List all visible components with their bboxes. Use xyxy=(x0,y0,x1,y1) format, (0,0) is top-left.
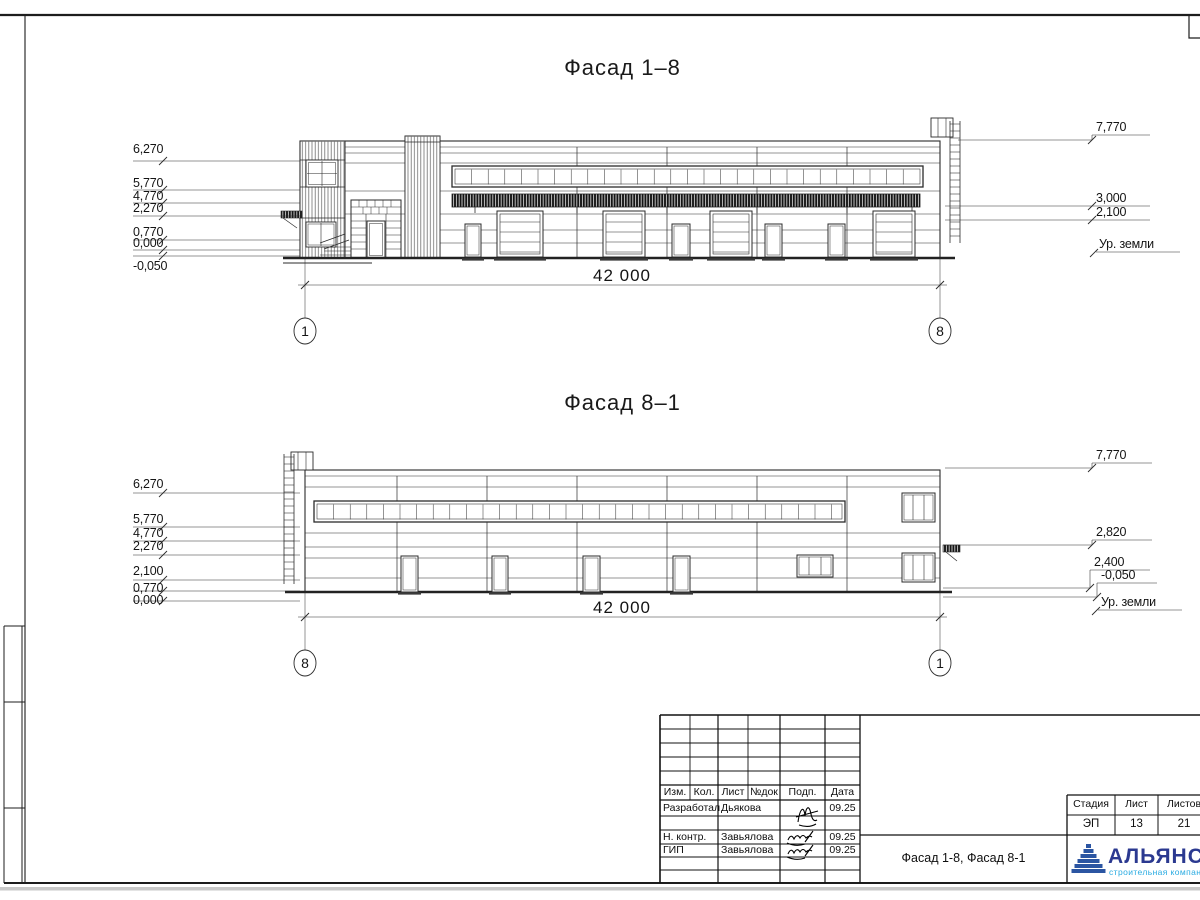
tb-row-date: 09.25 xyxy=(825,845,860,857)
tb-row-role: Н. контр. xyxy=(663,832,706,844)
tb-col-kol: Кол. xyxy=(690,787,718,799)
elevation-mark: 0,000 xyxy=(133,237,163,250)
tb-sheets-header: Листов xyxy=(1158,799,1200,811)
elevation-mark: 2,270 xyxy=(133,202,163,215)
tb-stage-header: Стадия xyxy=(1067,799,1115,811)
ground-level-label: Ур. земли xyxy=(1099,238,1154,251)
axis-bubble-1: 1 xyxy=(929,655,951,671)
tb-row-name: Дьякова xyxy=(721,803,761,815)
tb-row-date: 09.25 xyxy=(825,803,860,815)
axis-bubble-8: 8 xyxy=(929,323,951,339)
elevation-mark: 2,100 xyxy=(1096,206,1126,219)
elevation-mark: -0,050 xyxy=(1101,569,1135,582)
tb-row-role: Разработал xyxy=(663,803,720,815)
ground-level-label: Ур. земли xyxy=(1101,596,1156,609)
axis-bubble-8: 8 xyxy=(294,655,316,671)
facade-8-1-dimension: 42 000 xyxy=(542,599,702,617)
elevation-mark: 2,820 xyxy=(1096,526,1126,539)
axis-bubble-1: 1 xyxy=(294,323,316,339)
elevation-mark: 7,770 xyxy=(1096,449,1126,462)
signatures xyxy=(787,808,818,860)
elevation-mark: 2,100 xyxy=(133,565,163,578)
elevation-mark: 2,270 xyxy=(133,540,163,553)
elevation-mark: -0,050 xyxy=(133,260,167,273)
tb-sheet-value: 13 xyxy=(1115,818,1158,831)
drawing-linework xyxy=(0,0,1200,900)
tb-col-list: Лист xyxy=(718,787,748,799)
facade-1-8-title: Фасад 1–8 xyxy=(450,56,795,80)
facade-8-1-drawing xyxy=(285,452,960,676)
elevation-mark: 6,270 xyxy=(133,143,163,156)
facade-1-8-dimension: 42 000 xyxy=(542,267,702,285)
tb-row-name: Завьялова xyxy=(721,845,773,857)
elevation-mark: 5,770 xyxy=(133,513,163,526)
elevation-mark: 6,270 xyxy=(133,478,163,491)
signature-icon xyxy=(796,808,818,827)
brand-name: АЛЬЯНС xyxy=(1108,846,1200,867)
tb-sheets-value: 21 xyxy=(1158,818,1200,831)
brand-tagline: строительная компания xyxy=(1109,868,1200,877)
tb-row-name: Завьялова xyxy=(721,832,773,844)
drawing-sheet: Фасад 1–8 Фасад 8–1 42 000 42 000 1 8 8 … xyxy=(0,0,1200,900)
alliance-logo-icon xyxy=(1072,844,1106,873)
tb-col-podp: Подп. xyxy=(780,787,825,799)
tb-col-data: Дата xyxy=(825,787,860,799)
elevation-mark: 0,000 xyxy=(133,594,163,607)
tb-row-date: 09.25 xyxy=(825,832,860,844)
sheet-frame xyxy=(0,15,1200,891)
tb-stage-value: ЭП xyxy=(1067,818,1115,831)
elevation-mark: 3,000 xyxy=(1096,192,1126,205)
signature-icon xyxy=(787,831,813,845)
tb-row-role: ГИП xyxy=(663,845,684,857)
tb-sheet-header: Лист xyxy=(1115,799,1158,811)
tb-doc-title: Фасад 1-8, Фасад 8-1 xyxy=(862,852,1065,866)
facade-8-1-title: Фасад 8–1 xyxy=(450,391,795,415)
elevation-mark: 7,770 xyxy=(1096,121,1126,134)
tb-col-ndok: №док xyxy=(748,787,780,799)
tb-col-izm: Изм. xyxy=(660,787,690,799)
